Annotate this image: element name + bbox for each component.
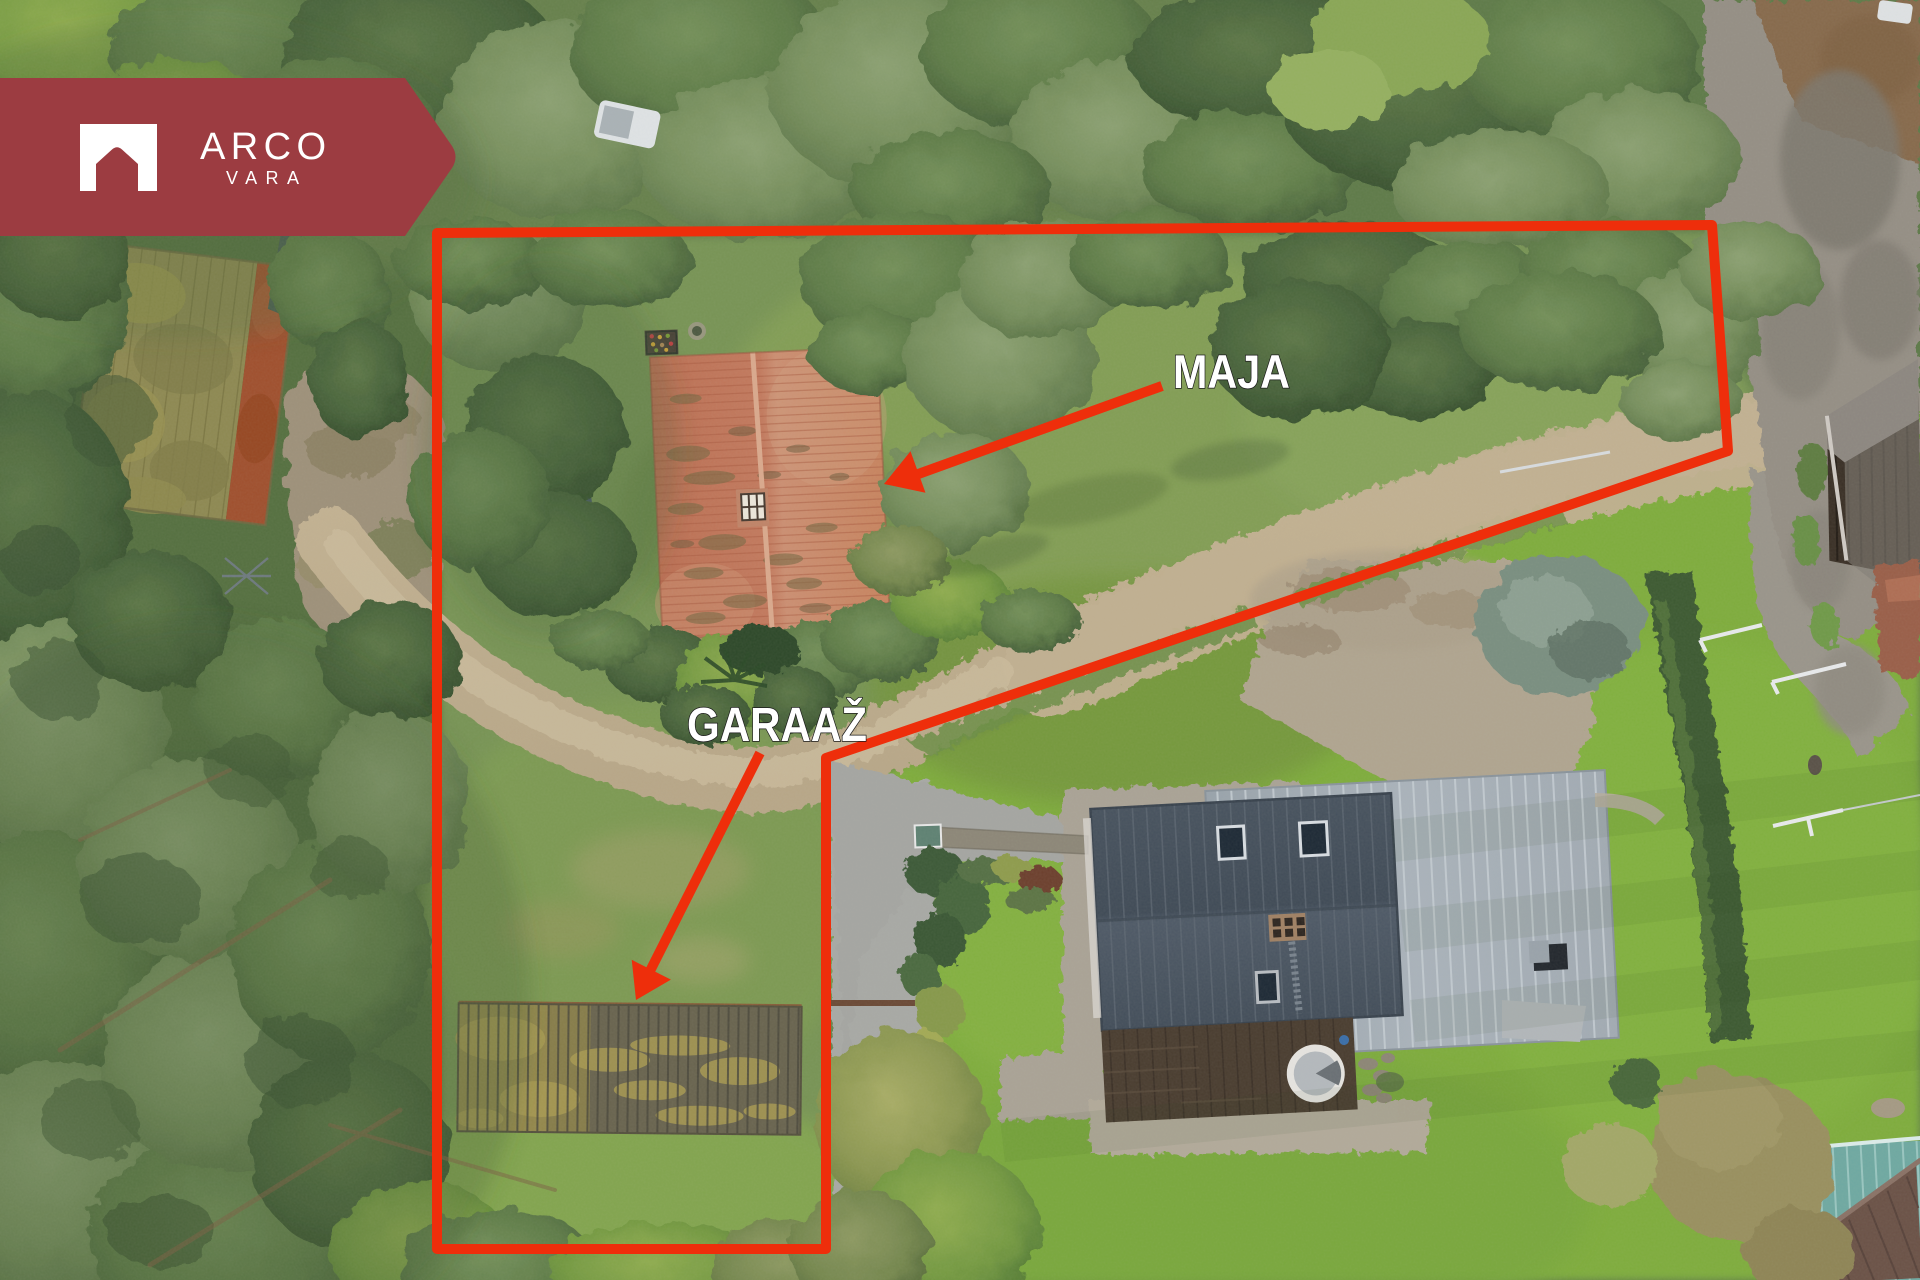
svg-text:MAJA: MAJA	[1173, 345, 1290, 398]
svg-text:GARAAŽ: GARAAŽ	[687, 697, 867, 752]
svg-text:ARCO: ARCO	[200, 126, 326, 168]
